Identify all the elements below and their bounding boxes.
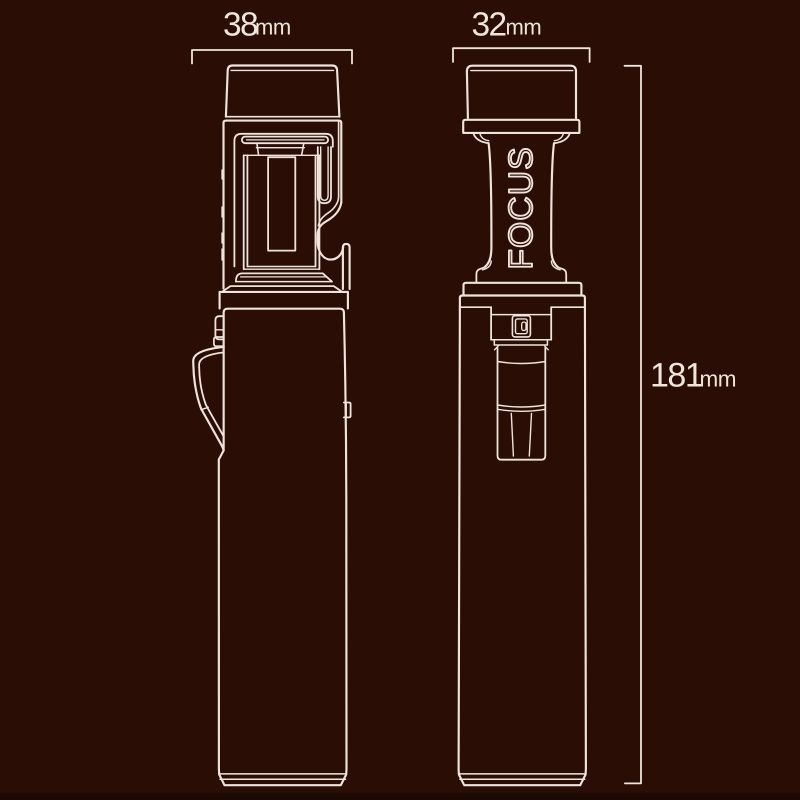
svg-text:32: 32 xyxy=(472,6,506,43)
svg-text:mm: mm xyxy=(255,15,291,40)
svg-text:38: 38 xyxy=(223,6,258,43)
svg-text:181: 181 xyxy=(650,357,703,395)
svg-text:FOCUS: FOCUS xyxy=(503,146,540,269)
svg-text:mm: mm xyxy=(700,366,737,391)
svg-text:mm: mm xyxy=(506,15,542,40)
